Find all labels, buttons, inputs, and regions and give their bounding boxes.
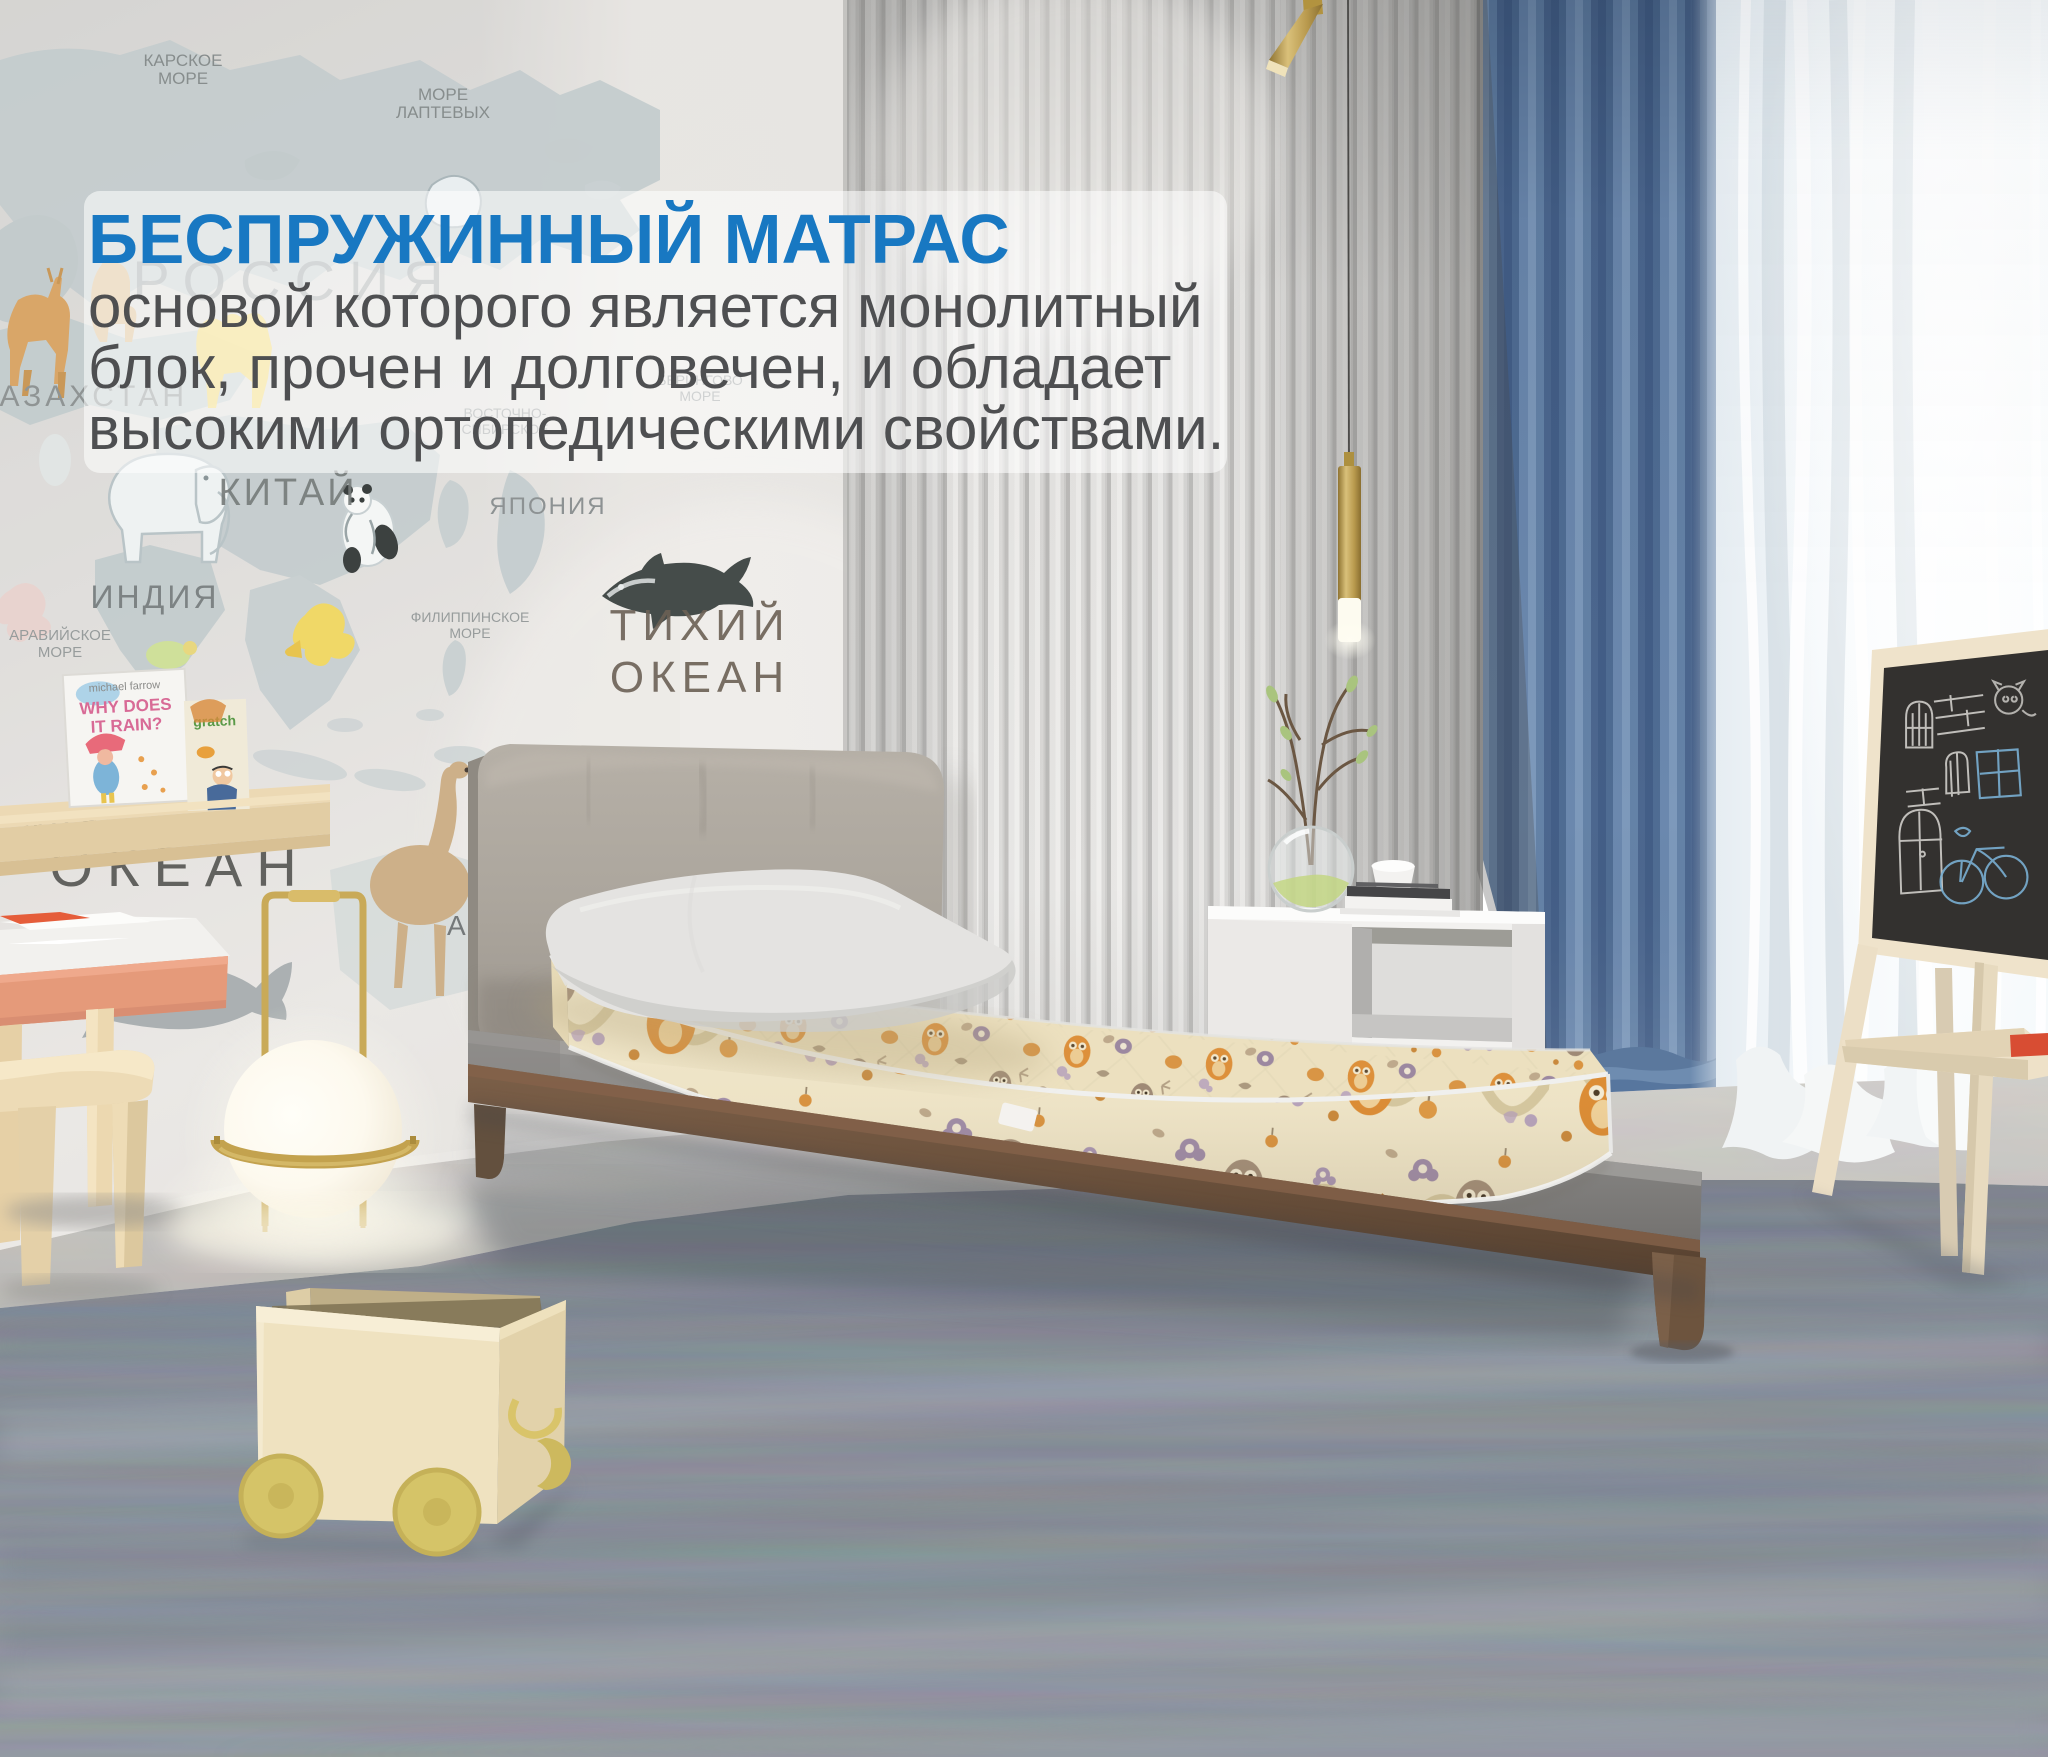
svg-text:МОРЕ: МОРЕ: [418, 85, 468, 104]
svg-text:МОРЕ: МОРЕ: [158, 69, 208, 88]
svg-text:ТИХИЙ: ТИХИЙ: [609, 599, 790, 650]
svg-text:МОРЕ: МОРЕ: [449, 625, 490, 641]
svg-text:КИТАЙ: КИТАЙ: [218, 469, 357, 514]
svg-text:ЯПОНИЯ: ЯПОНИЯ: [489, 493, 606, 520]
svg-text:БЕСПРУЖИННЫЙ МАТРАС: БЕСПРУЖИННЫЙ МАТРАС: [88, 199, 1010, 278]
svg-text:ОКЕАН: ОКЕАН: [610, 653, 790, 702]
svg-text:КАРСКОЕ: КАРСКОЕ: [144, 51, 223, 70]
svg-text:ИНДИЯ: ИНДИЯ: [91, 579, 220, 615]
svg-text:ЛАПТЕВЫХ: ЛАПТЕВЫХ: [396, 103, 490, 122]
svg-text:блок, прочен и долговечен, и о: блок, прочен и долговечен, и обладает: [88, 334, 1171, 401]
svg-text:высокими ортопедическими свойс: высокими ортопедическими свойствами.: [88, 395, 1224, 462]
svg-text:ФИЛИППИНСКОЕ: ФИЛИППИНСКОЕ: [411, 609, 530, 625]
svg-text:основой которого является моно: основой которого является монолитный: [88, 273, 1203, 340]
svg-text:МОРЕ: МОРЕ: [38, 644, 82, 661]
svg-text:IT RAIN?: IT RAIN?: [90, 714, 163, 737]
svg-text:АРАВИЙСКОЕ: АРАВИЙСКОЕ: [9, 626, 111, 644]
